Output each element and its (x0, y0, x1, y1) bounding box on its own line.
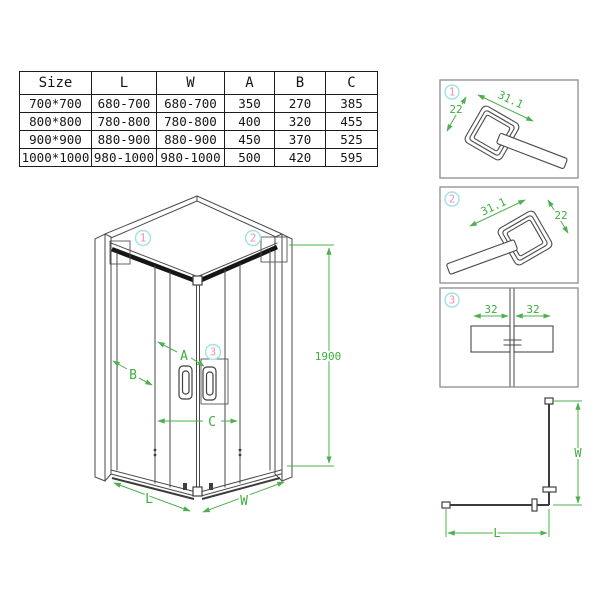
dim-height-label: 1900 (315, 350, 342, 363)
svg-text:3: 3 (449, 295, 455, 307)
col-header-size: Size (20, 72, 92, 95)
table-row: 900*900 880-900 880-900 450 370 525 (20, 131, 378, 149)
detail-1-dim-side-label: 22 (449, 103, 462, 116)
table-row: 700*700 680-700 680-700 350 270 385 (20, 95, 378, 113)
detail-1-badge: 1 (136, 231, 151, 246)
table-cell: 1000*1000 (20, 149, 92, 167)
plan-door-stop-bottom (532, 499, 537, 511)
table-cell: 400 (225, 113, 275, 131)
left-wall-profile (95, 234, 111, 481)
detail-3-dim-left-label: 32 (484, 303, 497, 316)
right-door-handle (203, 367, 216, 400)
table-header-row: Size L W A B C (20, 72, 378, 95)
detail-2-panel-badge: 2 (445, 192, 459, 206)
dim-height-1900: 1900 (287, 245, 341, 466)
dim-a-label: A (180, 349, 188, 364)
table-cell: 680-700 (92, 95, 157, 113)
col-header-c: C (326, 72, 378, 95)
detail-2-dim-side-label: 22 (554, 209, 567, 222)
right-wall-profile (275, 234, 292, 481)
glass-panel-edges (117, 251, 270, 487)
table-cell: 900*900 (20, 131, 92, 149)
plan-l-label: L (493, 526, 500, 540)
table-cell: 700*700 (20, 95, 92, 113)
table-row: 800*800 780-800 780-800 400 320 455 (20, 113, 378, 131)
table-cell: 455 (326, 113, 378, 131)
dim-w-label: W (240, 494, 248, 509)
col-header-w: W (157, 72, 225, 95)
detail-panel-2: 31.1 22 2 (440, 187, 578, 283)
svg-text:1: 1 (140, 233, 146, 245)
svg-text:2: 2 (449, 194, 455, 206)
plan-door-stop-right (543, 487, 556, 492)
detail-3-panel-badge: 3 (445, 293, 459, 307)
svg-text:2: 2 (250, 233, 256, 245)
svg-text:3: 3 (210, 347, 216, 359)
table-cell: 450 (225, 131, 275, 149)
detail-3-dim-right-label: 32 (526, 303, 539, 316)
table-cell: 780-800 (92, 113, 157, 131)
table-row: 1000*1000 980-1000 980-1000 500 420 595 (20, 149, 378, 167)
table-cell: 270 (275, 95, 326, 113)
detail-3-badge: 3 (206, 345, 221, 360)
table-cell: 370 (275, 131, 326, 149)
isometric-enclosure-view: 1 2 3 A B C L (95, 196, 341, 512)
table-cell: 880-900 (157, 131, 225, 149)
col-header-a: A (225, 72, 275, 95)
table-cell: 420 (275, 149, 326, 167)
plan-wall-anchor-top (545, 398, 553, 404)
plan-view: W L (442, 398, 582, 540)
left-door-handle (179, 366, 192, 399)
top-corner-block (193, 276, 202, 285)
table-cell: 980-1000 (92, 149, 157, 167)
table-cell: 800*800 (20, 113, 92, 131)
table-cell: 500 (225, 149, 275, 167)
table-cell: 680-700 (157, 95, 225, 113)
table-cell: 880-900 (92, 131, 157, 149)
dim-b: B (113, 361, 152, 385)
plan-dim-w: W (553, 401, 582, 505)
top-rails (111, 243, 277, 281)
dim-l-label: L (145, 492, 153, 507)
size-table: Size L W A B C 700*700 680-700 680-700 3… (19, 71, 378, 167)
col-header-l: L (92, 72, 157, 95)
dim-w: W (203, 482, 284, 512)
dim-c-label: C (208, 415, 216, 430)
detail-1-panel-badge: 1 (445, 85, 459, 99)
table-cell: 595 (326, 149, 378, 167)
plan-wall-anchor-left (442, 502, 450, 508)
detail-panel-1: 31.1 22 1 (440, 80, 578, 178)
table-cell: 350 (225, 95, 275, 113)
detail-2-badge: 2 (246, 231, 261, 246)
plan-w-label: W (574, 446, 582, 460)
corner-post (197, 285, 200, 487)
svg-text:1: 1 (449, 87, 455, 99)
plan-dim-l: L (446, 509, 549, 540)
dim-b-label: B (129, 368, 137, 383)
col-header-b: B (275, 72, 326, 95)
dim-a: A (158, 342, 204, 366)
detail-panel-3: 32 32 3 (440, 288, 578, 387)
shower-enclosure-spec-sheet: 1 2 3 A B C L (0, 0, 600, 600)
table-cell: 385 (326, 95, 378, 113)
table-cell: 525 (326, 131, 378, 149)
table-cell: 780-800 (157, 113, 225, 131)
table-cell: 320 (275, 113, 326, 131)
table-cell: 980-1000 (157, 149, 225, 167)
